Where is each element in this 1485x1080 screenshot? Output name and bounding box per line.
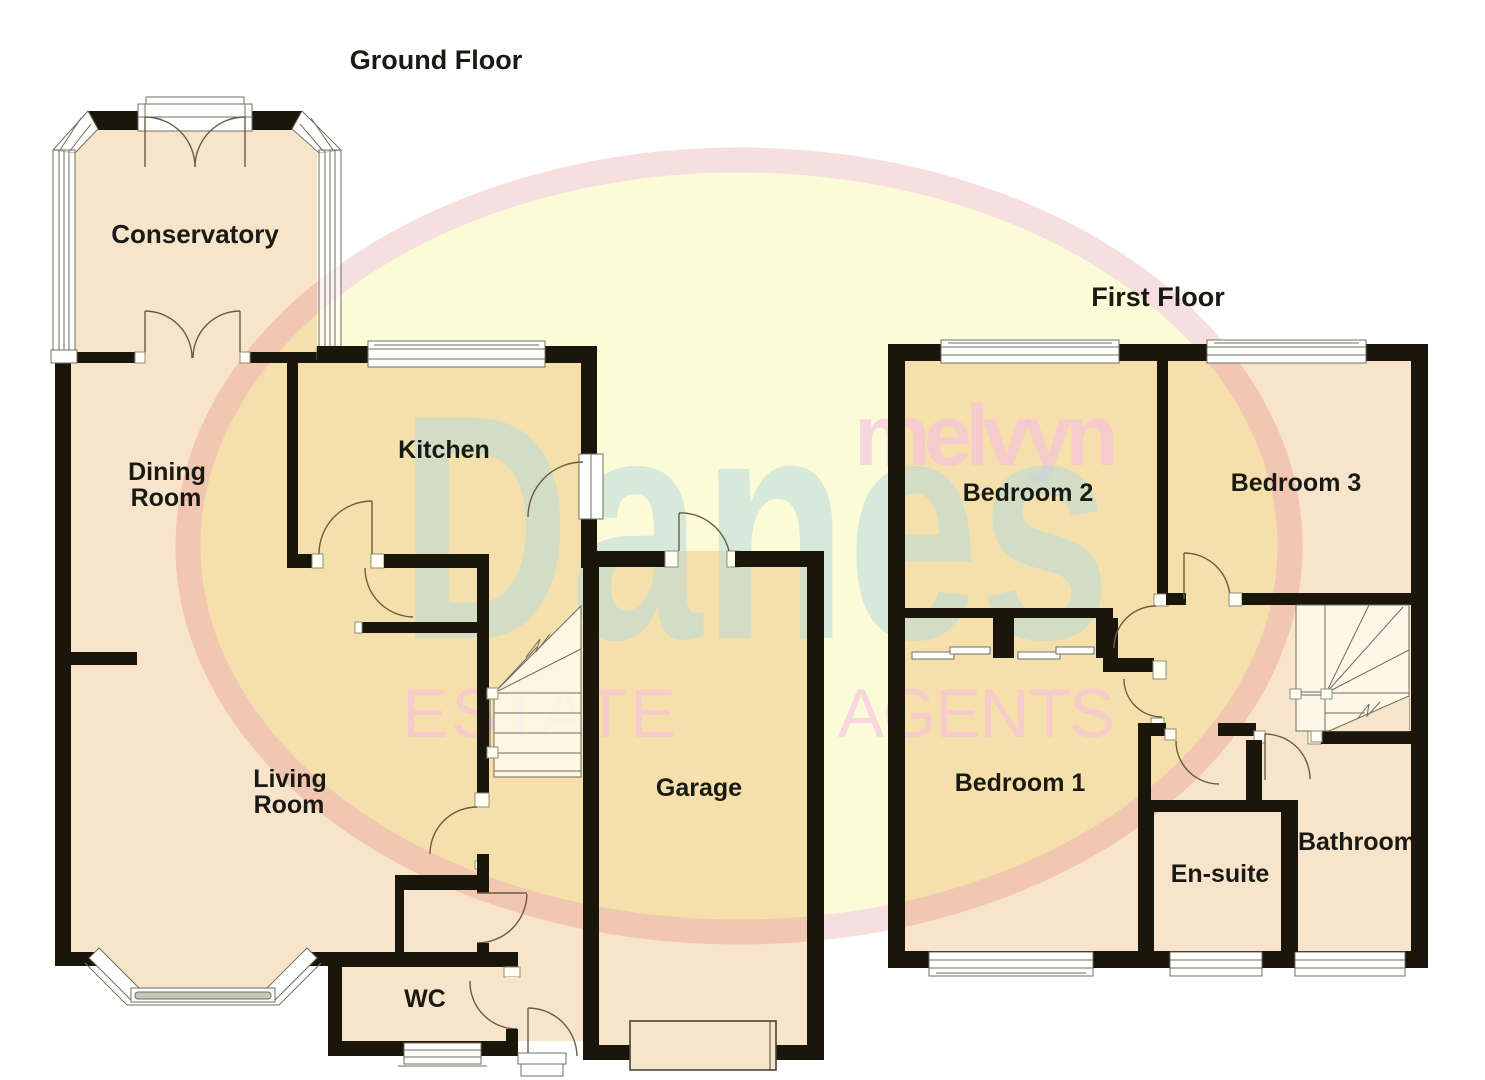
svg-text:Room: Room [254,791,325,819]
svg-text:WC: WC [404,985,446,1013]
svg-text:Ground Floor: Ground Floor [350,45,523,75]
svg-text:Conservatory: Conservatory [111,219,279,249]
svg-text:Bathroom: Bathroom [1298,828,1416,856]
svg-text:Bedroom 1: Bedroom 1 [955,769,1086,797]
svg-text:Bedroom 2: Bedroom 2 [963,479,1094,507]
svg-text:Dining: Dining [128,458,206,486]
svg-text:Bedroom 3: Bedroom 3 [1231,469,1362,497]
svg-text:Room: Room [131,484,202,512]
svg-text:First Floor: First Floor [1091,282,1225,312]
svg-text:Kitchen: Kitchen [398,436,490,464]
svg-text:En-suite: En-suite [1171,860,1270,888]
svg-text:AGENTS: AGENTS [838,675,1115,752]
svg-text:Living: Living [253,765,327,793]
svg-text:Garage: Garage [656,774,742,802]
